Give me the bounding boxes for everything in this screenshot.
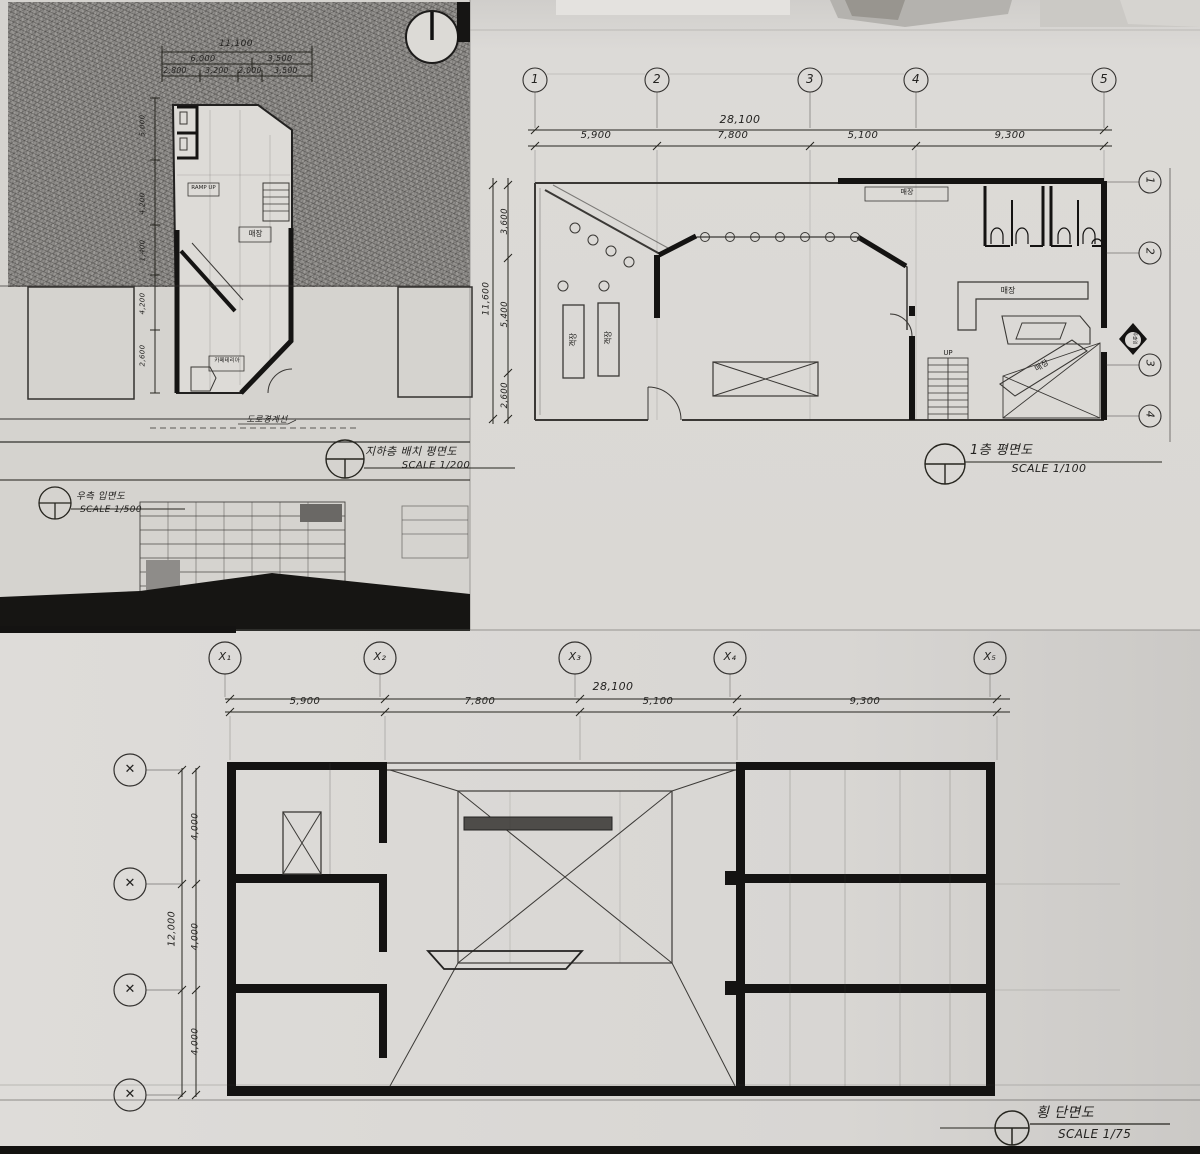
- ramp-label: RAMP UP: [188, 186, 219, 192]
- section-vdim: 4,000: [192, 1015, 201, 1069]
- site-dim-left: 2,600: [140, 331, 147, 381]
- plan-vdim: 3,600: [501, 194, 510, 248]
- floor-plan-interior: [545, 185, 1100, 420]
- section-dim-lines: [178, 695, 1010, 1099]
- site-dim-left: 1,400: [140, 226, 147, 276]
- display-case-label: 객장: [604, 318, 612, 358]
- section-grid-label: X₄: [712, 651, 748, 662]
- grid-bubble-label: 1: [523, 73, 547, 85]
- section-grid-label: X₁: [207, 651, 243, 662]
- level-mark-glyph: ✕: [114, 1088, 146, 1101]
- architectural-drawing-photo: 11,100 6,000 3,500 2,800 3,200 2,000 3,5…: [0, 0, 1200, 1154]
- floor-plan-right-grid: [1106, 168, 1170, 442]
- section-vdim: 4,000: [192, 910, 201, 964]
- cafeteria-label: 카페테리아: [209, 359, 245, 365]
- level-mark-glyph: ✕: [114, 763, 146, 776]
- site-dim-left: 5,000: [140, 101, 147, 151]
- road-boundary-label: 도로경계선: [237, 416, 297, 425]
- right-grid-label: 4: [1145, 403, 1156, 427]
- section-grid-label: X₃: [557, 651, 593, 662]
- grid-bubble-label: 2: [645, 73, 669, 85]
- bottom-edge-bar: [0, 1146, 1200, 1154]
- site-dim-left: 4,200: [140, 179, 147, 229]
- section-dim: 5,100: [623, 697, 693, 707]
- section-left-marks: [114, 754, 1120, 1111]
- section-scale: SCALE 1/75: [1058, 1128, 1158, 1140]
- counter-label: 매장: [978, 287, 1038, 295]
- section-dim-total: 28,100: [573, 681, 653, 692]
- up-label: UP: [928, 350, 968, 357]
- floor-plan-scale: SCALE 1/100: [999, 463, 1099, 474]
- site-dim: 6,000: [172, 55, 234, 63]
- entrance-label: 주출입: [1131, 326, 1136, 350]
- site-dim: 2,000: [236, 67, 264, 75]
- photo-fragments: [470, 0, 1200, 630]
- right-grid-label: 2: [1145, 240, 1156, 264]
- site-plan-scale: SCALE 1/200: [396, 461, 476, 471]
- section-dim: 5,900: [270, 697, 340, 707]
- level-mark-glyph: ✕: [114, 877, 146, 890]
- sheet-seam-bar: [0, 626, 236, 633]
- plan-dim: 7,800: [698, 131, 768, 141]
- elevation-scale: SCALE 1/500: [80, 506, 170, 515]
- site-plan-title: 지하층 배치 평면도: [365, 446, 475, 457]
- section-grid-label: X₅: [972, 651, 1008, 662]
- site-dim: 3,500: [262, 67, 310, 75]
- grid-bubble-label: 4: [904, 73, 928, 85]
- plan-dim: 9,300: [975, 131, 1045, 141]
- grid-bubble-label: 5: [1092, 73, 1116, 85]
- store-label: 매장: [240, 230, 271, 238]
- section-title: 횡 단면도: [1036, 1106, 1156, 1120]
- site-dim-left: 4,200: [140, 279, 147, 329]
- site-dim-total: 11,100: [196, 40, 276, 49]
- plan-dim: 5,900: [561, 131, 631, 141]
- elevation-title: 우측 입면도: [76, 492, 166, 502]
- right-grid-label: 3: [1145, 352, 1156, 376]
- grid-bubble-label: 3: [798, 73, 822, 85]
- site-dim: 2,800: [153, 67, 197, 75]
- plan-vdim-total: 11,600: [483, 269, 492, 329]
- section-vdim: 4,000: [192, 800, 201, 854]
- plan-dim-total: 28,100: [695, 114, 785, 125]
- section-dim: 9,300: [830, 697, 900, 707]
- plan-vdim: 5,400: [501, 287, 510, 341]
- level-mark-glyph: ✕: [114, 983, 146, 996]
- section-interior: [0, 763, 1200, 1100]
- drawing-linework: [0, 0, 1200, 1154]
- display-case-label: 객장: [569, 320, 577, 360]
- ground-black-wedge: [0, 573, 470, 631]
- floor-plan-toilets: [985, 186, 1103, 246]
- section-structure: [227, 762, 995, 1096]
- site-plan-building: [173, 105, 292, 393]
- site-dim: 3,200: [196, 67, 238, 75]
- floor-plan-title: 1층 평면도: [970, 444, 1090, 457]
- section-grid-label: X₂: [362, 651, 398, 662]
- plan-dim: 5,100: [828, 131, 898, 141]
- floor-plan-grid: [523, 68, 1116, 183]
- plan-vdim: 2,600: [501, 368, 510, 422]
- north-arrow-icon: [406, 2, 470, 63]
- right-grid-label: 1: [1145, 169, 1156, 193]
- store-top-label: 매장: [868, 189, 946, 196]
- section-dim: 7,800: [445, 697, 515, 707]
- site-dim: 3,500: [249, 55, 311, 63]
- section-vdim-total: 12,000: [167, 899, 177, 959]
